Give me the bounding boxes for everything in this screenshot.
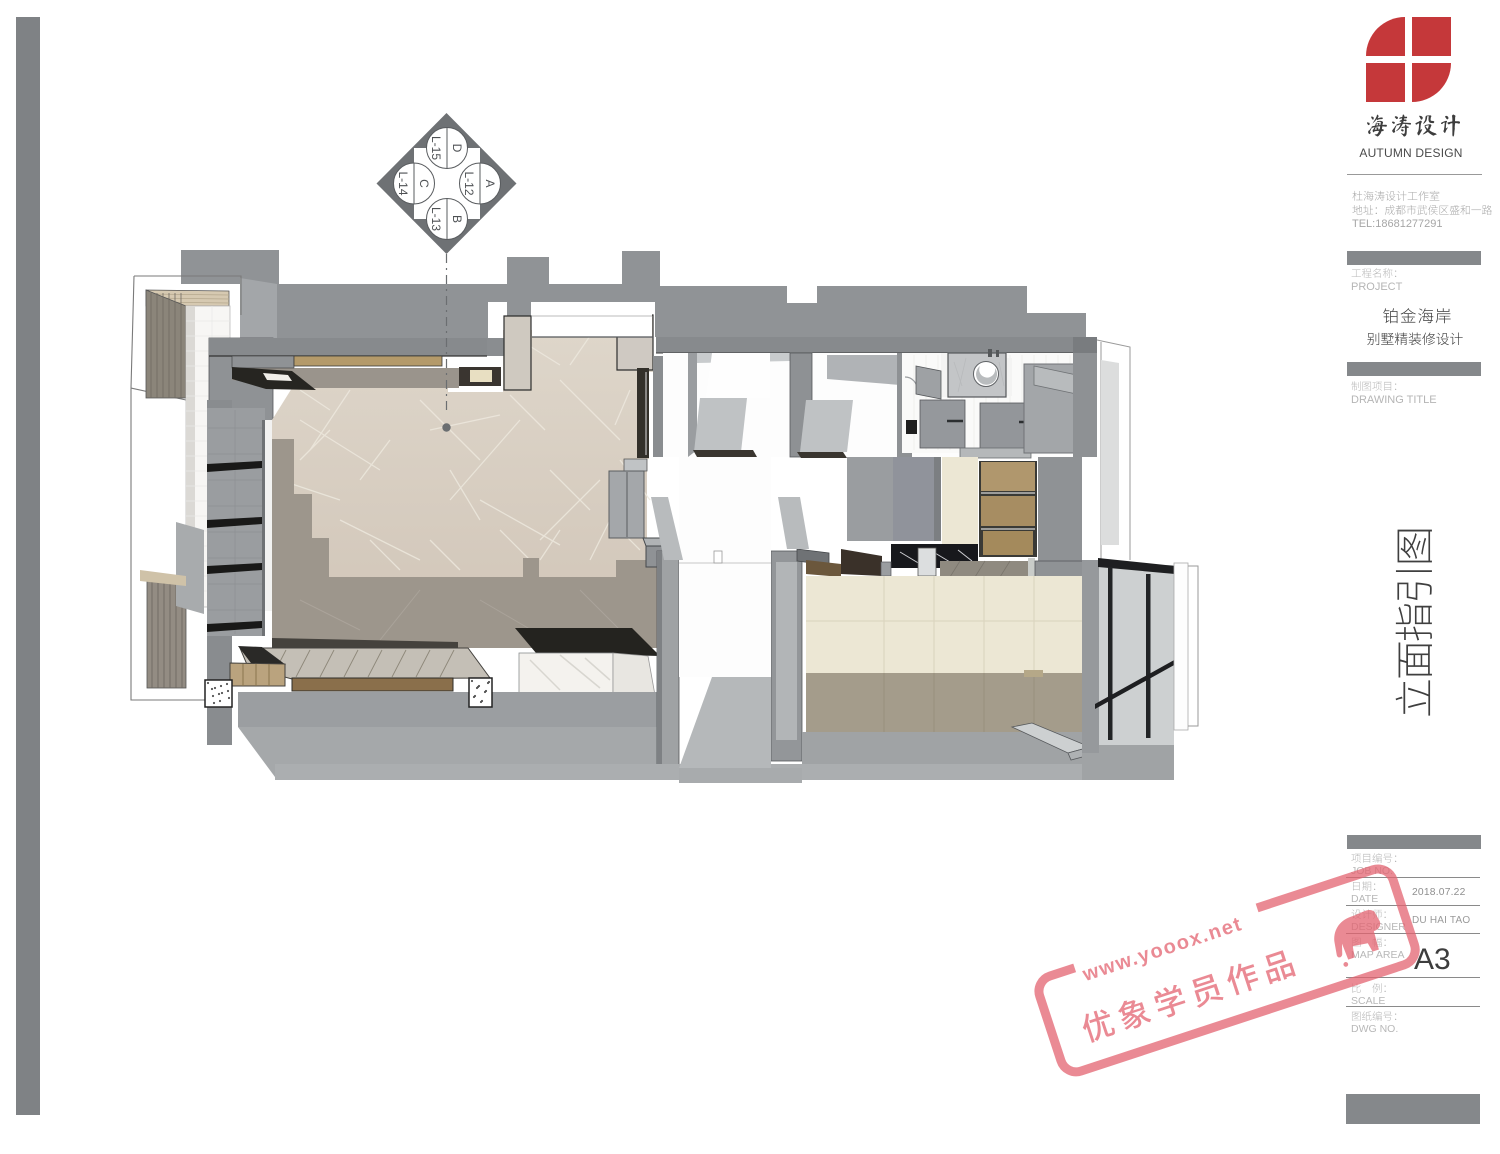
svg-text:L-15: L-15 bbox=[429, 136, 443, 160]
svg-text:C: C bbox=[417, 179, 431, 188]
svg-text:SCALE: SCALE bbox=[1351, 995, 1385, 1007]
svg-text:MAP AREA: MAP AREA bbox=[1351, 949, 1405, 961]
svg-text:L-13: L-13 bbox=[429, 207, 443, 231]
svg-text:DRAWING TITLE: DRAWING TITLE bbox=[1351, 394, 1437, 406]
svg-text:PROJECT: PROJECT bbox=[1351, 281, 1403, 293]
svg-text:AUTUMN DESIGN: AUTUMN DESIGN bbox=[1359, 146, 1462, 160]
svg-text:DATE: DATE bbox=[1351, 893, 1378, 905]
svg-text:L-12: L-12 bbox=[462, 171, 476, 195]
svg-text:DU HAI TAO: DU HAI TAO bbox=[1412, 915, 1470, 926]
svg-text:B: B bbox=[450, 215, 464, 223]
svg-text:TEL:18681277291: TEL:18681277291 bbox=[1352, 218, 1443, 230]
svg-text:A: A bbox=[483, 179, 497, 187]
svg-text:DWG NO.: DWG NO. bbox=[1351, 1023, 1398, 1035]
svg-text:2018.07.22: 2018.07.22 bbox=[1412, 887, 1466, 898]
svg-text:D: D bbox=[450, 144, 464, 153]
svg-text:L-14: L-14 bbox=[396, 171, 410, 195]
